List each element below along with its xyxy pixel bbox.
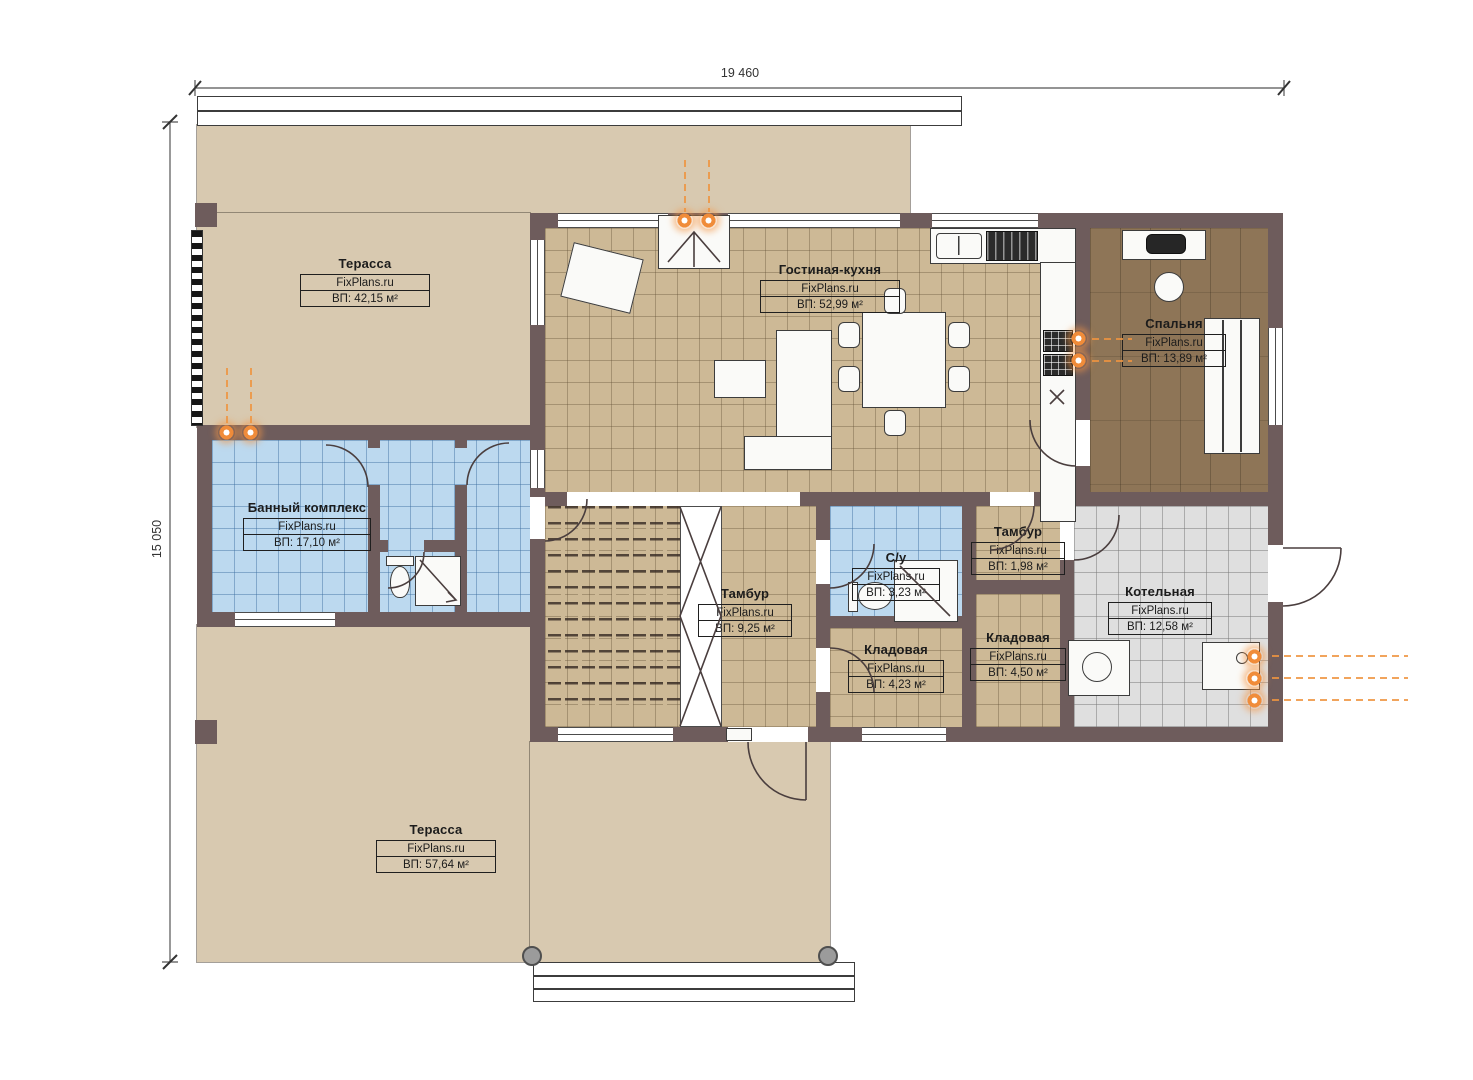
room-label-vestibule-main: Тамбур FixPlans.ru ВП: 9,25 м²: [698, 586, 792, 637]
wardrobe-line-2: [1240, 320, 1242, 452]
sofa-back: [776, 330, 832, 442]
room-name: Тамбур: [698, 586, 792, 601]
dining-chair-3: [948, 322, 970, 348]
room-label-terrace-bottom: Терасса FixPlans.ru ВП: 57,64 м²: [376, 822, 496, 873]
pillar-terrace-1: [522, 946, 542, 966]
room-name: Банный комплекс: [243, 500, 371, 515]
room-area: ВП: 57,64 м²: [377, 856, 495, 872]
pipe-bath-1: [218, 424, 235, 441]
pipe-boiler-2: [1246, 670, 1263, 687]
bath-wall-left: [197, 425, 212, 627]
wall-hall-wc-c: [816, 692, 830, 742]
dining-chair-1: [838, 322, 860, 348]
dimension-left-label: 15 050: [150, 494, 164, 584]
sofa-seat: [744, 436, 832, 470]
room-info-box: FixPlans.ru ВП: 17,10 м²: [243, 518, 371, 551]
room-label-bedroom: Спальня FixPlans.ru ВП: 13,89 м²: [1122, 316, 1226, 367]
room-name: Терасса: [300, 256, 430, 271]
room-name: Тамбур: [971, 524, 1065, 539]
column-bottom-left: [195, 720, 217, 744]
room-label-boiler-room: Котельная FixPlans.ru ВП: 12,58 м²: [1108, 584, 1212, 635]
desk-monitor: [1146, 234, 1186, 254]
steps-top-line: [198, 110, 961, 112]
dining-chair-4: [948, 366, 970, 392]
room-area: ВП: 3,23 м²: [853, 584, 939, 600]
room-info-box: FixPlans.ru ВП: 13,89 м²: [1122, 334, 1226, 367]
room-info-box: FixPlans.ru ВП: 42,15 м²: [300, 274, 430, 307]
dining-chair-6: [884, 410, 906, 436]
room-area: ВП: 17,10 м²: [244, 534, 370, 550]
room-brand: FixPlans.ru: [1109, 603, 1211, 618]
bath-toilet-bowl: [390, 566, 410, 598]
room-label-storage-2: Кладовая FixPlans.ru ВП: 4,50 м²: [970, 630, 1066, 681]
window-top-2: [728, 213, 900, 228]
kitchen-counter-right: [1040, 262, 1076, 522]
wall-living-bedroom-a: [1076, 213, 1090, 420]
room-name: Спальня: [1122, 316, 1226, 331]
room-area: ВП: 4,23 м²: [849, 676, 943, 692]
room-area: ВП: 13,89 м²: [1123, 350, 1225, 366]
room-brand: FixPlans.ru: [972, 543, 1064, 558]
room-brand: FixPlans.ru: [377, 841, 495, 856]
dim-line-left: [162, 122, 178, 962]
room-info-box: FixPlans.ru ВП: 4,23 м²: [848, 660, 944, 693]
room-info-box: FixPlans.ru ВП: 3,23 м²: [852, 568, 940, 601]
room-label-living-kitchen: Гостиная-кухня FixPlans.ru ВП: 52,99 м²: [760, 262, 900, 313]
window-left-1: [530, 240, 545, 325]
stairs: [548, 506, 680, 706]
room-area: ВП: 52,99 м²: [761, 296, 899, 312]
room-label-bath-complex: Банный комплекс FixPlans.ru ВП: 17,10 м²: [243, 500, 371, 551]
pipe-boiler-1: [1246, 648, 1263, 665]
room-brand: FixPlans.ru: [849, 661, 943, 676]
pipe-kitchen-1: [1070, 330, 1087, 347]
steps-bottom: [533, 962, 855, 1002]
window-bottom-1: [558, 727, 673, 742]
pipe-boiler-3: [1246, 692, 1263, 709]
window-left-2: [530, 450, 545, 488]
room-name: Терасса: [376, 822, 496, 837]
wall-hall-wc-a: [816, 506, 830, 540]
floor-plan-canvas: 19 460 15 050 Терасса FixPlans.ru ВП: 42…: [0, 0, 1473, 1080]
pipe-dash-boiler: [1272, 656, 1408, 700]
bath-partition-v1a: [368, 440, 380, 448]
room-brand: FixPlans.ru: [761, 281, 899, 296]
divider-living-hall-a: [545, 492, 567, 506]
room-label-vestibule-small: Тамбур FixPlans.ru ВП: 1,98 м²: [971, 524, 1065, 575]
pipe-bath-2: [242, 424, 259, 441]
kitchen-sink: [936, 233, 982, 259]
pipe-fireplace-1: [676, 212, 693, 229]
column-top-left: [195, 203, 217, 227]
pipe-kitchen-2: [1070, 352, 1087, 369]
kitchen-stove: [986, 231, 1038, 261]
room-brand: FixPlans.ru: [1123, 335, 1225, 350]
dining-chair-2: [838, 366, 860, 392]
fireplace: [658, 215, 730, 269]
room-brand: FixPlans.ru: [853, 569, 939, 584]
dimension-top-label: 19 460: [660, 66, 820, 80]
washing-machine-door: [1082, 652, 1112, 682]
window-bedroom: [1268, 328, 1283, 425]
room-info-box: FixPlans.ru ВП: 9,25 м²: [698, 604, 792, 637]
dining-table: [862, 312, 946, 408]
desk-chair: [1154, 272, 1184, 302]
window-bottom-2: [862, 727, 946, 742]
coffee-table: [714, 360, 766, 398]
terrace-bottom-floor-a: [197, 625, 530, 962]
room-label-storage-1: Кладовая FixPlans.ru ВП: 4,23 м²: [848, 642, 944, 693]
pipe-fireplace-2: [700, 212, 717, 229]
divider-living-south-a: [830, 492, 990, 506]
dim-line-top: [195, 80, 1284, 96]
room-info-box: FixPlans.ru ВП: 12,58 м²: [1108, 602, 1212, 635]
room-brand: FixPlans.ru: [244, 519, 370, 534]
room-info-box: FixPlans.ru ВП: 1,98 м²: [971, 542, 1065, 575]
room-brand: FixPlans.ru: [699, 605, 791, 620]
room-area: ВП: 1,98 м²: [972, 558, 1064, 574]
door-gap-boiler-exterior: [1268, 545, 1283, 602]
room-info-box: FixPlans.ru ВП: 57,64 м²: [376, 840, 496, 873]
bath-toilet-tank: [386, 556, 414, 566]
wall-right: [1268, 213, 1283, 742]
room-brand: FixPlans.ru: [301, 275, 429, 290]
bath-partition-v2a: [455, 440, 467, 448]
wall-living-bedroom-b: [1076, 466, 1090, 506]
room-name: С/у: [852, 550, 940, 565]
bath-partition-h-b: [424, 540, 455, 552]
divider-living-hall-b: [800, 492, 830, 506]
terrace-left-floor: [197, 213, 530, 427]
steps-bottom-line2: [534, 988, 854, 990]
room-name: Кладовая: [970, 630, 1066, 645]
hatch-strip-left: [191, 230, 203, 426]
cooktop-2: [1043, 354, 1073, 376]
wall-vestibule-storage2: [976, 580, 1060, 594]
door-arc-boiler-ext: [1283, 548, 1341, 606]
terrace-top-floor: [197, 125, 910, 215]
wall-hall-wc-b: [816, 584, 830, 648]
room-name: Котельная: [1108, 584, 1212, 599]
terrace-bottom-floor-b: [530, 742, 830, 962]
room-brand: FixPlans.ru: [971, 649, 1065, 664]
cooktop-1: [1043, 330, 1073, 352]
door-gap-bath-hall: [530, 497, 545, 539]
room-area: ВП: 12,58 м²: [1109, 618, 1211, 634]
room-name: Гостиная-кухня: [760, 262, 900, 277]
bath-shower: [415, 556, 461, 606]
pillar-terrace-2: [818, 946, 838, 966]
bath-partition-h-a: [380, 540, 388, 552]
steps-bottom-line1: [534, 975, 854, 977]
room-name: Кладовая: [848, 642, 944, 657]
entry-door-leaf: [726, 728, 752, 741]
room-area: ВП: 4,50 м²: [971, 664, 1065, 680]
room-label-wc: С/у FixPlans.ru ВП: 3,23 м²: [852, 550, 940, 601]
window-top-1: [558, 213, 668, 228]
window-bath: [235, 612, 335, 627]
room-area: ВП: 9,25 м²: [699, 620, 791, 636]
room-label-terrace-top: Терасса FixPlans.ru ВП: 42,15 м²: [300, 256, 430, 307]
room-info-box: FixPlans.ru ВП: 52,99 м²: [760, 280, 900, 313]
room-area: ВП: 42,15 м²: [301, 290, 429, 306]
window-kitchen: [932, 213, 1038, 228]
room-info-box: FixPlans.ru ВП: 4,50 м²: [970, 648, 1066, 681]
